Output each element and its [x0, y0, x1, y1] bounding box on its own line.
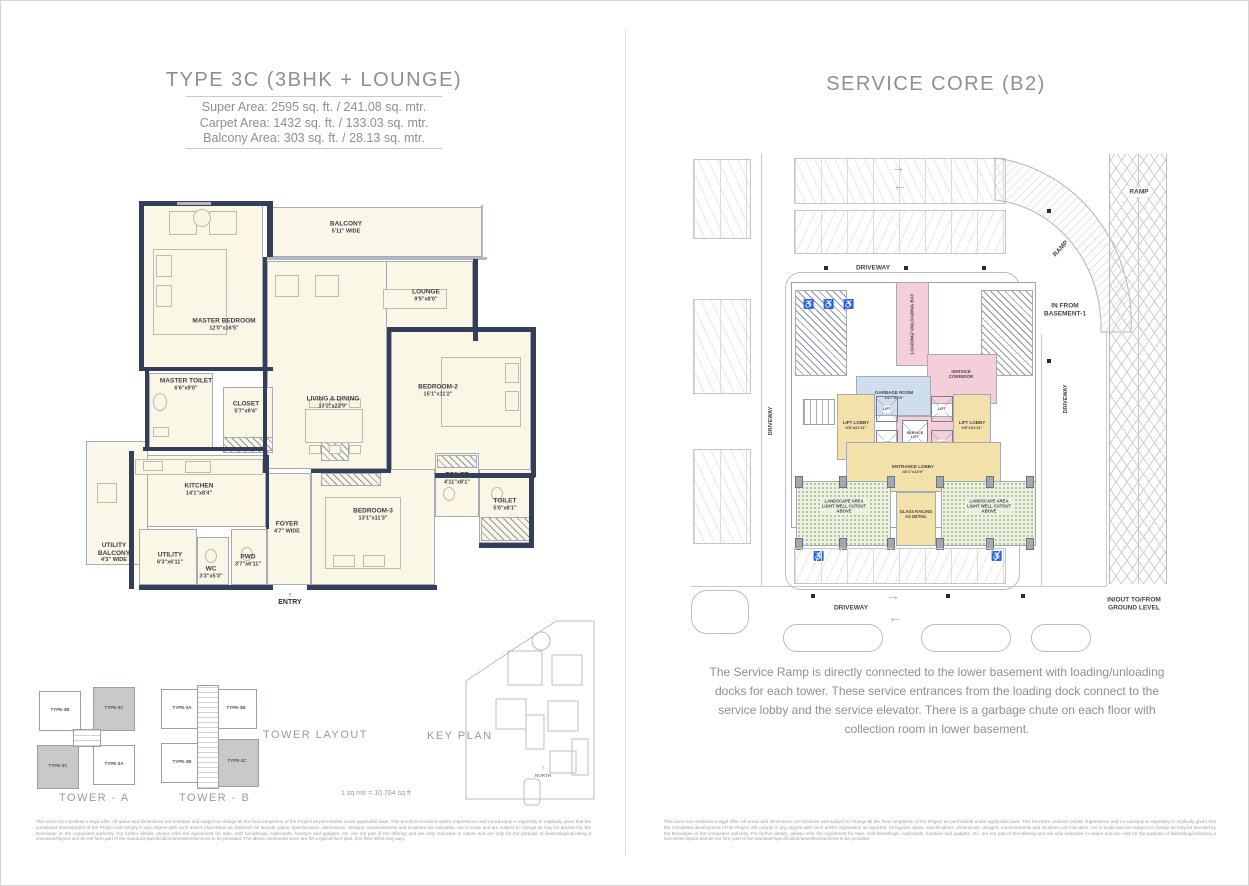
label-master-bedroom: MASTER BEDROOM 12'0"x16'5" — [192, 318, 255, 333]
ramp-spine — [1138, 154, 1139, 584]
washing-machine-icon — [97, 483, 117, 503]
room-dim: 13'1"x11'3" — [353, 515, 393, 523]
landscape-label-left: LANDSCAPE AREA LIGHT WELL CUTOUT ABOVE — [820, 499, 868, 514]
room-dim: 12'0"x16'5" — [192, 325, 255, 333]
handicap-icon: ♿ — [823, 300, 834, 309]
disclaimer-right: This does not constitute a legal offer. … — [664, 819, 1216, 842]
wall-segment — [387, 327, 391, 473]
room-name: UTILITY BALCONY — [98, 542, 130, 557]
kerb-dot — [982, 266, 986, 270]
unit-type-label: TYPE-3B — [162, 759, 202, 764]
wall-segment — [311, 469, 389, 473]
furniture-chair — [315, 275, 339, 297]
driveway-label-bottom: DRIVEWAY — [834, 604, 868, 612]
pillar — [986, 476, 994, 488]
unit-type-highlight: TYPE-3C — [215, 739, 259, 787]
furniture-chair — [209, 211, 237, 235]
unit-type-highlight: TYPE-3C — [37, 745, 79, 789]
label-pwd: PWD 3'7"x6'11" — [235, 554, 261, 569]
shaft-hatch — [321, 473, 381, 486]
room-name: MASTER TOILET — [160, 378, 212, 385]
label-master-toilet: MASTER TOILET 6'6"x9'0" — [160, 378, 212, 393]
unit-type: TYPE-3B — [39, 691, 81, 731]
stove-icon — [185, 461, 211, 473]
landscape-area-right — [941, 481, 1036, 546]
floorplan-type3c: MASTER BEDROOM 12'0"x16'5" BALCONY 5'11"… — [81, 197, 593, 627]
service-corridor-label: SERVICE CORRIDOR — [941, 369, 981, 379]
tower-b-label: TOWER - B — [179, 792, 250, 804]
label-toilet2: TOILET 5'0"x8'1" — [493, 498, 516, 513]
kerb-dot — [811, 594, 815, 598]
wall-segment — [129, 451, 134, 589]
wall-segment — [139, 585, 273, 590]
room-dim: 9'8"x21'11" — [955, 425, 989, 430]
label-utility-balcony: UTILITY BALCONY 4'3" WIDE — [92, 542, 136, 565]
toilet-fixture-icon — [443, 487, 455, 501]
furniture-pillow — [505, 363, 519, 383]
toilet-fixture-icon — [153, 393, 167, 411]
tower-core — [73, 729, 101, 747]
room-name: CLOSET — [233, 401, 259, 408]
entry-text: ENTRY — [278, 599, 301, 606]
room-name: KITCHEN — [185, 483, 214, 490]
lift-lobby-right-label: LIFT LOBBY 9'8"x21'11" — [955, 420, 989, 430]
label-balcony: BALCONY 5'11" WIDE — [330, 221, 362, 236]
room-dim: 3'7"x6'11" — [235, 561, 261, 569]
wall-segment — [311, 585, 437, 590]
room-dim: 4'7" WIDE — [274, 528, 300, 536]
pillar — [887, 476, 895, 488]
glass-railing-walkway — [896, 492, 936, 546]
direction-arrow-left: ← — [893, 180, 907, 190]
kerb-line — [1041, 334, 1042, 586]
wall-segment — [143, 447, 266, 451]
center-divider — [625, 29, 626, 855]
unit-type: TYPE-3B — [215, 689, 257, 729]
kerb-dot — [904, 266, 908, 270]
pillar — [839, 476, 847, 488]
wall-segment — [479, 543, 534, 548]
landscape-area-left — [796, 481, 891, 546]
parking-island — [1031, 624, 1091, 652]
kerb-dot — [824, 266, 828, 270]
room-name: BEDROOM-2 — [418, 384, 458, 391]
lift-label: LIFT — [883, 406, 891, 413]
service-lift-label: SERVICE LIFT — [903, 431, 927, 439]
furniture-chair — [309, 445, 321, 454]
room-balcony — [269, 207, 483, 257]
parking-stalls — [693, 299, 751, 394]
room-name: MASTER BEDROOM — [192, 318, 255, 325]
key-plan-sketch — [456, 619, 596, 809]
room-dim: 4'3" WIDE — [92, 557, 136, 565]
kerb-dot — [946, 594, 950, 598]
service-core-description: The Service Ramp is directly connected t… — [698, 663, 1176, 739]
super-area: Super Area: 2595 sq. ft. / 241.08 sq. mt… — [154, 100, 474, 116]
parking-island — [921, 624, 1011, 652]
label-utility: UTILITY 6'3"x6'11" — [157, 552, 183, 567]
room-name: UTILITY — [158, 552, 183, 559]
glass-railing-label: GLASS RAILING AS DETAIL — [899, 509, 933, 519]
wall-segment — [139, 367, 273, 371]
driveway-label-left: DRIVEWAY — [768, 407, 775, 436]
room-name: PWD — [240, 554, 255, 561]
pillar — [1026, 476, 1034, 488]
parking-stalls — [693, 159, 751, 239]
parking-stalls — [794, 210, 1006, 254]
room-dim: 3'3"x5'3" — [199, 573, 222, 581]
parking-island — [783, 624, 883, 652]
wall-segment — [529, 473, 534, 547]
furniture-pillow — [156, 285, 172, 307]
unit-type-label: TYPE-3A — [94, 761, 134, 766]
room-name: TOILET — [493, 498, 516, 505]
wall-segment — [267, 201, 273, 259]
kerb-dot — [1021, 594, 1025, 598]
driveway-label-top: DRIVEWAY — [856, 264, 890, 272]
washbasin-icon — [153, 427, 169, 437]
wall-segment — [391, 327, 536, 332]
window — [177, 202, 211, 205]
kerb-dot — [1047, 209, 1051, 213]
pillar — [795, 476, 803, 488]
wall-segment — [139, 201, 144, 371]
parking-stalls — [693, 449, 751, 544]
rule-bottom — [186, 148, 442, 149]
lift-label: LIFT — [938, 406, 946, 413]
brochure-page: TYPE 3C (3BHK + LOUNGE) Super Area: 2595… — [0, 0, 1249, 886]
direction-arrow-right: → — [886, 590, 900, 600]
toilet-fixture-icon — [205, 549, 217, 563]
room-name: TOILET — [445, 472, 468, 479]
room-dim: 5'7"x9'4" — [233, 408, 259, 416]
entry-arrow-icon: ↑ — [278, 592, 301, 599]
in-out-label: IN/OUT TO/FROM GROUND LEVEL — [1098, 597, 1170, 612]
page-title-right: SERVICE CORE (B2) — [776, 73, 1096, 96]
loading-bay-label: LOADING/ UNLOADING BAY — [910, 292, 915, 356]
unit-type-label: TYPE-3B — [40, 707, 80, 712]
shaft-hatch — [437, 455, 477, 468]
room-dim: 14'1"x8'4" — [185, 490, 214, 498]
room-dim: 9'8"x21'11" — [839, 425, 873, 430]
balcony-area: Balcony Area: 303 sq. ft. / 28.13 sq. mt… — [154, 131, 474, 147]
room-dim: 15'1"x11'2" — [418, 391, 458, 399]
furniture-chair — [329, 445, 341, 454]
room-name: WC — [206, 566, 217, 573]
room-dim: 5'0"x8'1" — [493, 505, 516, 513]
unit-type-label: TYPE-3C — [216, 758, 258, 763]
unit-type-label: TYPE-3A — [162, 705, 202, 710]
room-dim: 6'3"x6'11" — [157, 559, 183, 567]
wall-segment — [145, 371, 149, 451]
furniture-dining-table — [305, 409, 363, 443]
wall-segment — [266, 455, 269, 529]
label-kitchen: KITCHEN 14'1"x8'4" — [185, 483, 214, 498]
pillar — [936, 476, 944, 488]
unit-type-label: TYPE-3C — [94, 705, 134, 710]
room-name: FOYER — [276, 521, 298, 528]
carpet-area: Carpet Area: 1432 sq. ft. / 133.03 sq. m… — [154, 116, 474, 132]
label-toilet1: TOILET 4'11"x8'1" — [444, 472, 470, 487]
pillar — [1026, 538, 1034, 550]
handicap-icon: ♿ — [803, 300, 814, 309]
room-dim: 46'1"x11'9" — [892, 469, 934, 474]
room-dim: 9'5"x8'0" — [412, 296, 440, 304]
scale-note: 1 sq mtr = 10.764 sq ft — [341, 790, 411, 797]
label-bedroom2: BEDROOM-2 15'1"x11'2" — [418, 384, 458, 399]
unit-type-highlight: TYPE-3C — [93, 687, 135, 731]
wall-segment — [263, 257, 267, 473]
label-closet: CLOSET 5'7"x9'4" — [233, 401, 259, 416]
lift-lobby-left-label: LIFT LOBBY 9'8"x21'11" — [839, 420, 873, 430]
wall-segment — [307, 585, 315, 590]
furniture-pillow — [363, 555, 385, 567]
room-name: LOUNGE — [412, 289, 440, 296]
balcony-rail — [267, 257, 487, 260]
furniture-pillow — [156, 255, 172, 277]
room-name: LIVING & DINING — [307, 396, 360, 403]
landscape-label-right: LANDSCAPE AREA LIGHT WELL CUTOUT ABOVE — [965, 499, 1013, 514]
wall-segment — [531, 327, 536, 477]
furniture-pillow — [333, 555, 355, 567]
room-dim: 13'2"x23'9" — [307, 403, 360, 411]
north-arrow-icon: ↑ — [535, 765, 551, 772]
unit-type: TYPE-3A — [93, 745, 135, 785]
label-lounge: LOUNGE 9'5"x8'0" — [412, 289, 440, 304]
staircase — [803, 399, 835, 425]
north-label: NORTH — [535, 772, 551, 779]
page-title-left: TYPE 3C (3BHK + LOUNGE) — [154, 69, 474, 92]
furniture-table — [193, 209, 211, 227]
kerb-line — [761, 154, 762, 586]
direction-arrow-right: → — [891, 162, 905, 172]
furniture-pillow — [505, 391, 519, 411]
unit-type-label: TYPE-3B — [216, 705, 256, 710]
direction-arrow-left: ← — [888, 612, 902, 622]
balcony-rail — [481, 205, 483, 259]
room-name: BEDROOM-3 — [353, 508, 393, 515]
rule-top — [186, 96, 442, 97]
furniture-chair — [275, 275, 299, 297]
room-dim: 4'11"x8'1" — [444, 479, 470, 487]
kerb-dot — [1047, 359, 1051, 363]
label-living-dining: LIVING & DINING 13'2"x23'9" — [307, 396, 360, 411]
ramp-label-right: RAMP — [1127, 187, 1150, 197]
furniture-chair — [349, 445, 361, 454]
disclaimer-left: This does not constitute a legal offer. … — [36, 819, 591, 842]
room-dim: 5'11" WIDE — [330, 228, 362, 236]
parking-island — [691, 590, 749, 634]
label-wc: WC 3'3"x5'3" — [199, 566, 222, 581]
tower-layout-label: TOWER LAYOUT — [263, 729, 368, 741]
entry-label: ↑ ENTRY — [278, 592, 301, 606]
tower-b-mini-plan: TYPE-3A TYPE-3B TYPE-3B TYPE-3C — [159, 685, 259, 791]
sink-icon — [143, 461, 163, 471]
tower-a-mini-plan: TYPE-3B TYPE-3C TYPE-3C TYPE-3A — [37, 687, 137, 791]
shaft-hatch — [481, 517, 531, 541]
room-name: BALCONY — [330, 221, 362, 228]
in-from-basement-label: IN FROM BASEMENT-1 — [1035, 303, 1095, 318]
parking-stalls — [794, 548, 1006, 584]
tower-a-label: TOWER - A — [59, 792, 130, 804]
handicap-icon: ♿ — [843, 300, 854, 309]
room-dim: 6'6"x9'0" — [160, 385, 212, 393]
tower-core — [197, 685, 219, 789]
area-summary: Super Area: 2595 sq. ft. / 241.08 sq. mt… — [154, 100, 474, 147]
label-bedroom3: BEDROOM-3 13'1"x11'3" — [353, 508, 393, 523]
north-indicator: ↑ NORTH — [535, 765, 551, 779]
label-foyer: FOYER 4'7" WIDE — [274, 521, 300, 536]
kerb-line — [1106, 332, 1107, 586]
driveway-label-right: DRIVEWAY — [1063, 385, 1070, 414]
entrance-lobby-label: ENTRANCE LOBBY 46'1"x11'9" — [892, 464, 934, 474]
service-core-plan: DRIVEWAY → ← DRIVEWAY RAMP IN FROM BASEM… — [691, 154, 1179, 652]
unit-type-label: TYPE-3C — [38, 763, 78, 768]
